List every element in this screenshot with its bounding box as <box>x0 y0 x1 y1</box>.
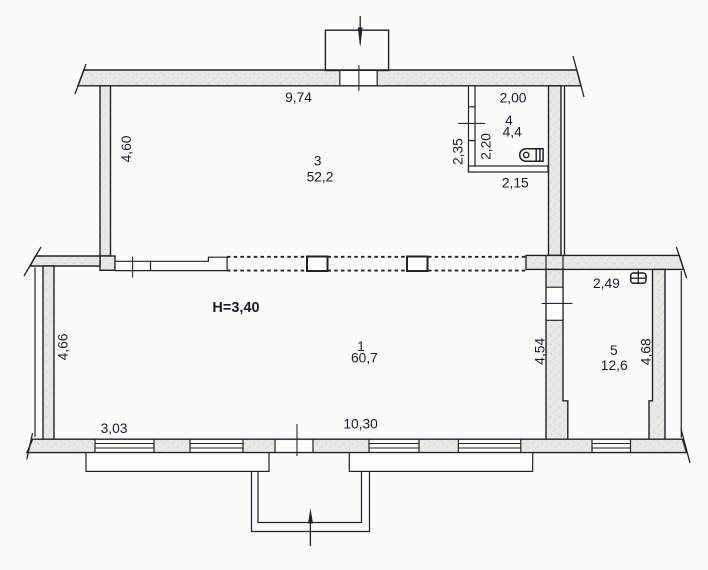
svg-text:9,74: 9,74 <box>285 90 312 105</box>
svg-text:52,2: 52,2 <box>307 170 334 185</box>
svg-text:5: 5 <box>610 343 618 358</box>
svg-text:2,49: 2,49 <box>593 276 620 291</box>
svg-text:4,68: 4,68 <box>638 338 653 365</box>
svg-text:2,35: 2,35 <box>451 138 466 165</box>
svg-text:4,4: 4,4 <box>503 124 523 139</box>
svg-text:12,6: 12,6 <box>601 358 628 373</box>
svg-text:3,03: 3,03 <box>101 421 128 436</box>
svg-text:4,54: 4,54 <box>533 338 548 365</box>
svg-text:2,20: 2,20 <box>479 133 494 160</box>
svg-text:60,7: 60,7 <box>351 351 378 366</box>
svg-text:2,15: 2,15 <box>502 176 529 191</box>
svg-text:4,66: 4,66 <box>56 333 71 360</box>
svg-text:2,00: 2,00 <box>500 90 527 105</box>
svg-text:10,30: 10,30 <box>343 417 378 432</box>
svg-text:3: 3 <box>314 154 322 169</box>
svg-text:H=3,40: H=3,40 <box>212 300 259 316</box>
svg-text:4,60: 4,60 <box>119 135 134 162</box>
